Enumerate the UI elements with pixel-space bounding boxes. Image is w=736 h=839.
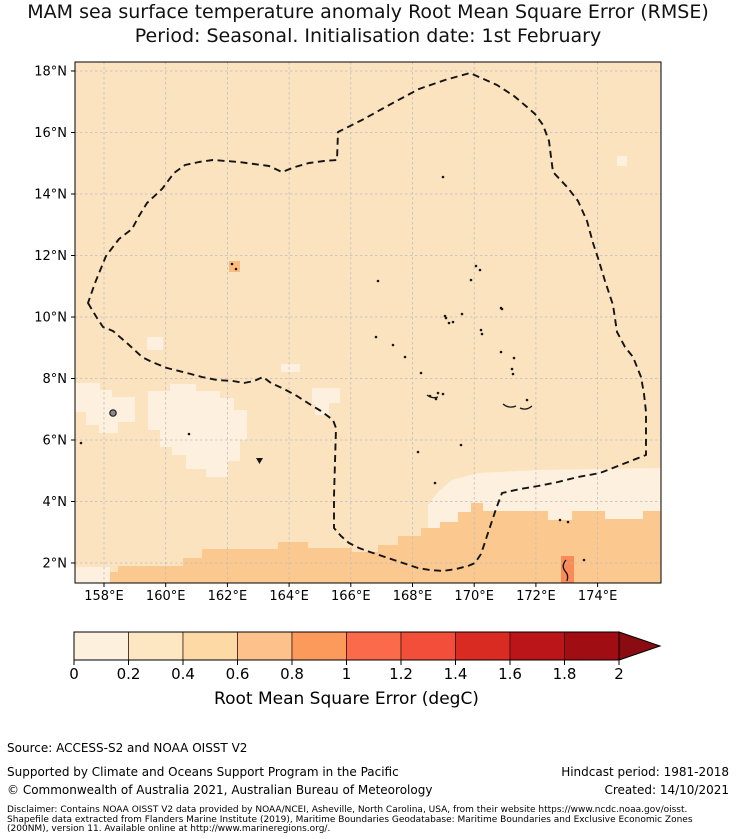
y-tick-label: 12°N <box>34 249 67 264</box>
created-date-note: Created: 14/10/2021 <box>604 783 729 797</box>
islet-dot <box>480 329 483 332</box>
islet-dot <box>442 393 445 396</box>
x-tick-label: 174°E <box>578 589 618 604</box>
copyright-note: © Commonwealth of Australia 2021, Austra… <box>7 783 432 797</box>
islet-dot <box>231 263 234 266</box>
low-rmse-patch <box>75 567 110 583</box>
islet-dot <box>501 308 504 311</box>
colorbar-tick-label: 1.6 <box>498 665 522 683</box>
islet-dot <box>479 269 482 272</box>
map-field <box>75 62 661 583</box>
islet-dot <box>460 444 463 447</box>
colorbar-tick-label: 0.8 <box>280 665 304 683</box>
colorbar-bin <box>565 632 620 660</box>
x-tick-label: 160°E <box>146 589 186 604</box>
islet-dot <box>500 351 503 354</box>
colorbar-bin <box>347 632 402 660</box>
y-tick-label: 6°N <box>43 434 68 449</box>
y-tick-label: 8°N <box>43 372 68 387</box>
islet-dot <box>448 322 451 325</box>
y-tick-label: 14°N <box>34 188 67 203</box>
figure: MAM sea surface temperature anomaly Root… <box>0 0 736 839</box>
map-plot: 158°E160°E162°E164°E166°E168°E170°E172°E… <box>0 0 736 730</box>
hindcast-period-note: Hindcast period: 1981-2018 <box>561 765 729 779</box>
colorbar-tick-label: 1.4 <box>444 665 468 683</box>
island-circle <box>110 410 116 416</box>
colorbar-bin <box>238 632 293 660</box>
islet-dot <box>567 521 570 524</box>
colorbar-bin <box>292 632 347 660</box>
colorbar-tick-label: 0 <box>69 665 79 683</box>
colorbar-extend-arrow <box>619 632 660 660</box>
islet-dot <box>513 357 516 360</box>
support-note: Supported by Climate and Oceans Support … <box>7 765 399 779</box>
colorbar-tick-label: 0.4 <box>171 665 195 683</box>
islet-dot <box>481 333 484 336</box>
x-tick-label: 168°E <box>393 589 433 604</box>
y-tick-label: 10°N <box>34 311 67 326</box>
islet-dot <box>235 268 238 271</box>
islet-dot <box>444 315 447 318</box>
colorbar-label: Root Mean Square Error (degC) <box>214 689 479 709</box>
islet-dot <box>583 559 586 562</box>
islet-dot <box>404 356 407 359</box>
islet-dot <box>442 176 445 179</box>
low-rmse-patch <box>147 337 163 350</box>
low-rmse-patch <box>281 364 300 372</box>
colorbar-tick-label: 1.8 <box>553 665 577 683</box>
x-tick-label: 164°E <box>269 589 309 604</box>
islet-dot <box>420 372 423 375</box>
islet-dot <box>470 279 473 282</box>
colorbar-bin <box>510 632 565 660</box>
colorbar-bin <box>129 632 184 660</box>
islet-dot <box>375 336 378 339</box>
colorbar: 00.20.40.60.811.21.41.61.82Root Mean Squ… <box>69 632 660 709</box>
islet-dot <box>80 442 83 445</box>
atoll-rmse-cell <box>229 261 240 272</box>
colorbar-tick-label: 1.2 <box>389 665 413 683</box>
x-tick-label: 172°E <box>516 589 556 604</box>
x-tick-label: 162°E <box>208 589 248 604</box>
islet-dot <box>452 321 455 324</box>
colorbar-tick-label: 2 <box>614 665 624 683</box>
islet-dot <box>417 451 420 454</box>
islet-dot <box>377 280 380 283</box>
y-tick-label: 16°N <box>34 126 67 141</box>
islet-dot <box>559 519 562 522</box>
colorbar-tick-label: 1 <box>342 665 352 683</box>
islet-dot <box>437 392 440 395</box>
colorbar-bin <box>456 632 511 660</box>
islet-dot <box>392 344 395 347</box>
y-tick-label: 18°N <box>34 65 67 80</box>
x-tick-label: 170°E <box>454 589 494 604</box>
islet-dot <box>511 368 514 371</box>
colorbar-bin <box>401 632 456 660</box>
islet-dot <box>461 313 464 316</box>
islet-dot <box>526 399 529 402</box>
colorbar-tick-label: 0.6 <box>226 665 250 683</box>
x-tick-label: 158°E <box>84 589 124 604</box>
x-tick-label: 166°E <box>331 589 371 604</box>
islet-dot <box>188 433 191 436</box>
islet-dot <box>475 265 478 268</box>
colorbar-tick-label: 0.2 <box>117 665 141 683</box>
disclaimer-line-3: (200NM), version 11. Available online at… <box>7 825 693 835</box>
colorbar-bin <box>183 632 238 660</box>
disclaimer: Disclaimer: Contains NOAA OISST V2 data … <box>7 806 693 835</box>
islet-dot <box>512 373 515 376</box>
y-tick-label: 2°N <box>43 557 68 572</box>
y-tick-label: 4°N <box>43 495 68 510</box>
islet-dot <box>434 482 437 485</box>
colorbar-bin <box>74 632 129 660</box>
low-rmse-patch <box>617 156 627 166</box>
source-note: Source: ACCESS-S2 and NOAA OISST V2 <box>7 741 247 755</box>
